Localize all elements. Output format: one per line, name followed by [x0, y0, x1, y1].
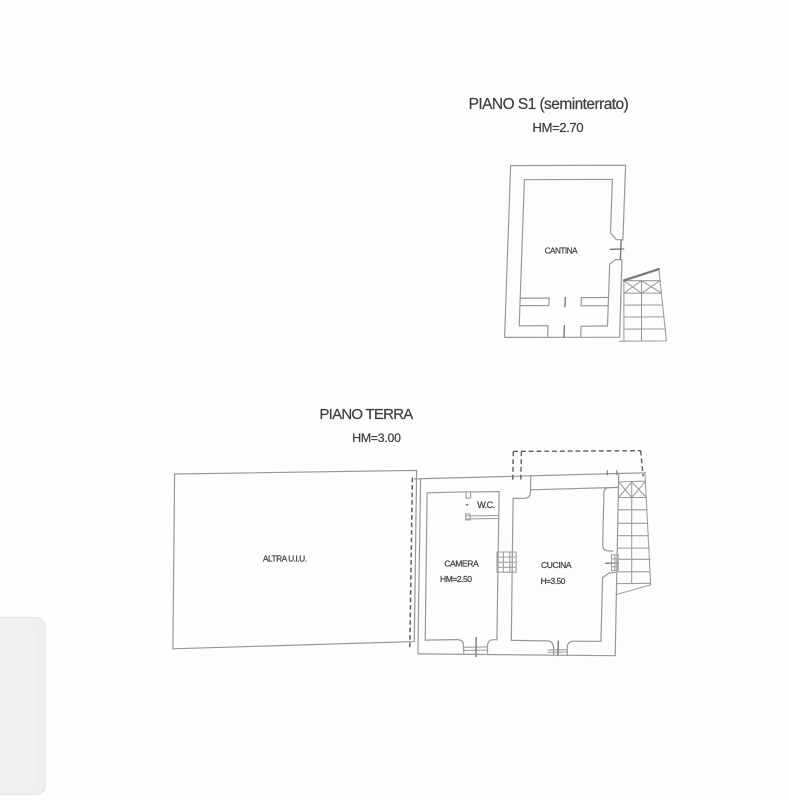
svg-text:PIANO TERRA: PIANO TERRA — [319, 406, 413, 423]
svg-text:ALTRA U.I.U.: ALTRA U.I.U. — [263, 554, 307, 564]
svg-text:CUCINA: CUCINA — [541, 560, 572, 570]
svg-text:CANTINA: CANTINA — [545, 246, 578, 255]
svg-text:-: - — [466, 500, 469, 510]
svg-text:HM=2.50: HM=2.50 — [440, 574, 472, 584]
svg-text:H=3.50: H=3.50 — [541, 576, 566, 586]
svg-text:CAMERA: CAMERA — [444, 559, 479, 569]
svg-text:HM=3.00: HM=3.00 — [352, 431, 401, 445]
svg-text:PIANO S1 (seminterrato): PIANO S1 (seminterrato) — [469, 96, 629, 113]
svg-text:W.C.: W.C. — [477, 500, 495, 510]
svg-text:HM=2.70: HM=2.70 — [532, 120, 583, 135]
